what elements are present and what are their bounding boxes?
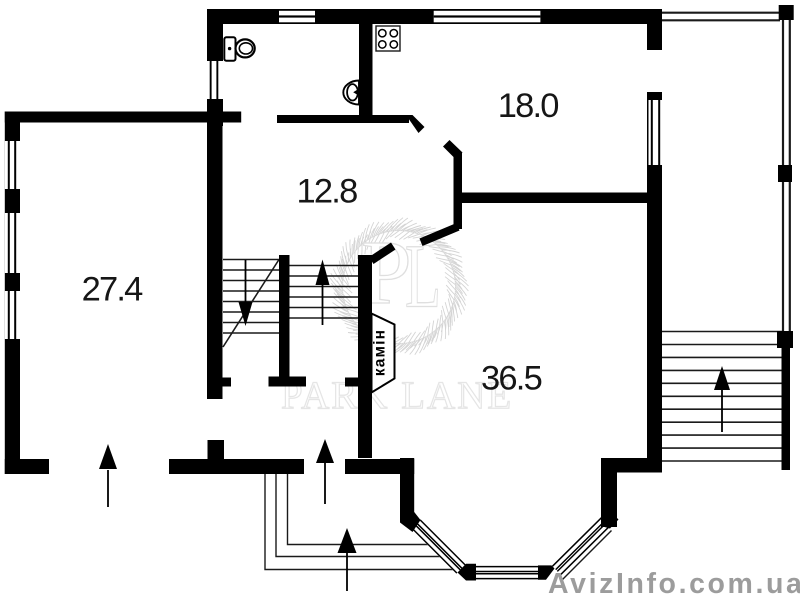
svg-text:камін: камін (372, 329, 389, 377)
svg-text:18.0: 18.0 (498, 87, 559, 125)
svg-text:36.5: 36.5 (481, 360, 542, 398)
svg-text:AvizInfo.com.ua: AvizInfo.com.ua (548, 568, 800, 600)
svg-text:12.8: 12.8 (297, 173, 358, 211)
svg-text:PARK LANE: PARK LANE (281, 374, 513, 417)
svg-text:27.4: 27.4 (82, 271, 144, 309)
